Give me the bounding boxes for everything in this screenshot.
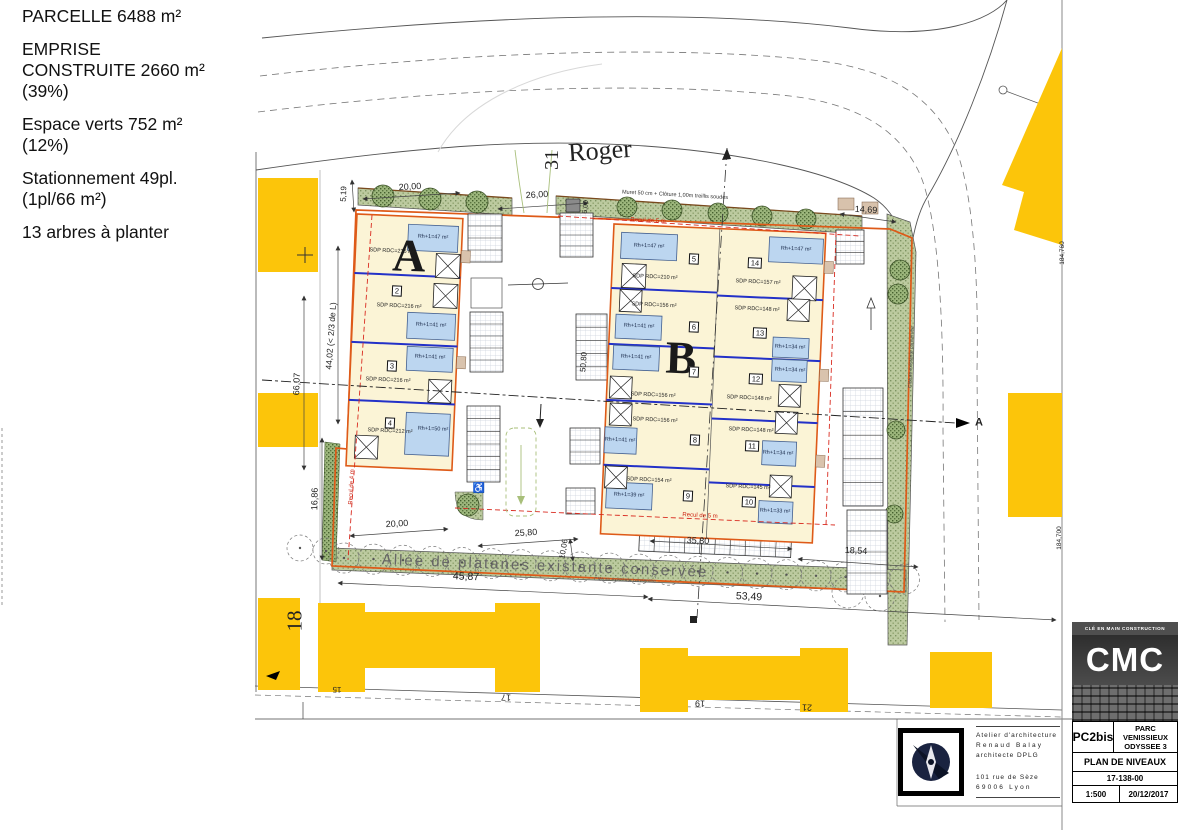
patio-box bbox=[354, 435, 378, 459]
architect-address: 101 rue de Sèze bbox=[976, 773, 1060, 783]
info-line: Stationnement 49pl. bbox=[22, 168, 234, 189]
planter bbox=[471, 278, 502, 308]
parking-row bbox=[843, 388, 883, 506]
sheet-title: PLAN DE NIVEAUX bbox=[1073, 753, 1177, 771]
parking-row bbox=[470, 312, 503, 372]
context-building bbox=[930, 652, 992, 708]
label-dimensions-right_14_69: 14,69 bbox=[855, 205, 878, 215]
info-line: (1pl/66 m²) bbox=[22, 189, 234, 210]
label-dimensions-left_16_86: 16,86 bbox=[310, 488, 319, 511]
tree-crown-icon bbox=[887, 421, 905, 439]
info-line: EMPRISE bbox=[22, 39, 234, 60]
title-block: CLÉ EN MAIN CONSTRUCTION CMC PC2bis PARC… bbox=[1072, 622, 1178, 803]
architect-text-block: Atelier d'architecture Renaud Balay arch… bbox=[976, 726, 1060, 811]
tree-crown-icon bbox=[708, 203, 728, 223]
context-building bbox=[318, 603, 540, 692]
tree-trunk-dot bbox=[785, 573, 787, 575]
label-dimensions-bottom_20_00: 20,00 bbox=[386, 519, 409, 529]
site-plan-sheet: Roger31181517192120,0026,005,196,0014,69… bbox=[0, 0, 1180, 831]
tree-crown-icon bbox=[419, 188, 441, 210]
unit-number: 6 bbox=[689, 321, 700, 332]
unit-number: 8 bbox=[690, 434, 701, 445]
project-name: PARC VENISSIEUX ODYSSEE 3 bbox=[1114, 722, 1177, 752]
info-line: 13 arbres à planter bbox=[22, 222, 234, 243]
tree-crown-icon bbox=[885, 505, 903, 523]
unit-number: 7 bbox=[689, 366, 700, 377]
label-dimensions-bottom_53_49: 53,49 bbox=[736, 591, 763, 603]
label-dimensions-left_66_07: 66,07 bbox=[292, 373, 302, 396]
info-line: PARCELLE 6488 m² bbox=[22, 6, 234, 27]
label-streets-house_numbers-2: 19 bbox=[695, 698, 705, 707]
parking-row bbox=[467, 406, 500, 482]
label-dimensions-bottom_35_80: 35,80 bbox=[687, 536, 710, 546]
context-building bbox=[640, 648, 848, 712]
architect-logo-image bbox=[903, 733, 959, 791]
tree-trunk-dot bbox=[815, 575, 817, 577]
tree-trunk-dot bbox=[756, 572, 758, 574]
label-dimensions-bottom_18_54: 18,54 bbox=[845, 546, 868, 556]
section-arrow bbox=[956, 418, 970, 428]
info-paragraph: PARCELLE 6488 m² bbox=[22, 6, 234, 27]
parking-row bbox=[560, 213, 593, 257]
tree-crown-icon bbox=[888, 284, 908, 304]
context-building bbox=[258, 393, 318, 447]
dimension-line bbox=[648, 599, 1056, 620]
porch bbox=[838, 198, 854, 210]
context-building bbox=[1002, 48, 1062, 245]
patio-box bbox=[792, 276, 817, 301]
info-paragraph: 13 arbres à planter bbox=[22, 222, 234, 243]
label-streets-number_left: 18 bbox=[285, 611, 306, 632]
info-paragraph: Espace verts 752 m²(12%) bbox=[22, 114, 234, 156]
info-line: (39%) bbox=[22, 81, 234, 102]
parking-row bbox=[468, 214, 502, 262]
drawing-date: 20/12/2017 bbox=[1120, 786, 1177, 802]
architect-address: 69006 Lyon bbox=[976, 783, 1060, 793]
label-dimensions-top_left: 20,00 bbox=[399, 182, 422, 192]
label-dimensions-entrance: 26,00 bbox=[526, 190, 549, 200]
tree-trunk-dot bbox=[726, 571, 728, 573]
label-notes-section_marker: A bbox=[975, 418, 983, 429]
patio-box bbox=[769, 475, 792, 498]
patio-box bbox=[787, 299, 810, 322]
parking-row-outline bbox=[470, 312, 503, 372]
patio-box bbox=[775, 411, 798, 434]
label-dimensions-depth_6: 6,00 bbox=[582, 200, 590, 214]
tree-trunk-dot bbox=[343, 557, 345, 559]
architect-line: architecte DPLG bbox=[976, 751, 1060, 761]
label-streets-number_top: 31 bbox=[542, 150, 562, 170]
unit-number: 13 bbox=[753, 327, 768, 339]
context-building bbox=[1008, 393, 1062, 517]
tree-crown-icon bbox=[617, 197, 637, 217]
label-dimensions-center_50_80: 50,80 bbox=[579, 352, 588, 373]
unit-number: 3 bbox=[387, 360, 398, 371]
parking-row-outline bbox=[843, 388, 883, 506]
label-levels-north: 184,760 bbox=[1060, 241, 1067, 265]
dimension-line bbox=[350, 529, 448, 536]
unit-number: 14 bbox=[748, 257, 763, 269]
info-line: CONSTRUITE 2660 m² bbox=[22, 60, 234, 81]
tree-crown-icon bbox=[372, 185, 394, 207]
unit-number: 9 bbox=[683, 490, 694, 501]
tree-crown-icon bbox=[457, 494, 479, 516]
company-tagline: CLÉ EN MAIN CONSTRUCTION bbox=[1072, 622, 1178, 635]
tree-crown-icon bbox=[752, 206, 772, 226]
patio-box bbox=[609, 403, 632, 426]
tree-crown-icon bbox=[466, 191, 488, 213]
dimension-line bbox=[338, 583, 648, 597]
architect-line: Atelier d'architecture bbox=[976, 731, 1060, 741]
title-block-table: PC2bis PARC VENISSIEUX ODYSSEE 3 PLAN DE… bbox=[1072, 721, 1178, 803]
tree-trunk-dot bbox=[879, 595, 881, 597]
unit-number: 5 bbox=[689, 253, 700, 264]
label-dimensions-bottom_45_87: 45,87 bbox=[453, 571, 480, 582]
unit-number: 12 bbox=[749, 373, 764, 385]
context-building bbox=[258, 178, 318, 272]
patio-box bbox=[435, 253, 460, 278]
phase-label: PC2bis bbox=[1073, 722, 1114, 752]
info-line: Espace verts 752 m² bbox=[22, 114, 234, 135]
tree-trunk-dot bbox=[372, 558, 374, 560]
label-symbols-handicap: ♿ bbox=[473, 484, 485, 494]
drawing-scale: 1:500 bbox=[1073, 786, 1120, 802]
label-levels-south: 184,700 bbox=[1057, 526, 1064, 550]
architect-logo bbox=[898, 728, 964, 796]
parking-row bbox=[566, 488, 595, 514]
label-dimensions-side_5_19: 5,19 bbox=[340, 186, 349, 202]
parking-row-outline bbox=[570, 428, 600, 464]
unit-number: 11 bbox=[745, 440, 759, 452]
cmc-logo: CMC bbox=[1072, 635, 1178, 685]
label-streets-house_numbers-1: 17 bbox=[501, 692, 511, 701]
unit-number: 10 bbox=[742, 496, 757, 508]
divider-line bbox=[976, 797, 1060, 798]
tree-trunk-dot bbox=[325, 550, 327, 552]
info-paragraph: EMPRISECONSTRUITE 2660 m²(39%) bbox=[22, 39, 234, 102]
label-streets-house_numbers-3: 21 bbox=[802, 702, 812, 711]
patio-box bbox=[604, 466, 627, 489]
tree-crown-icon bbox=[890, 260, 910, 280]
patio-box bbox=[609, 376, 632, 399]
label-streets-house_numbers-0: 15 bbox=[332, 685, 341, 693]
label-streets-name: Roger bbox=[567, 136, 632, 166]
unit-number: 4 bbox=[385, 417, 396, 428]
bin-shelter bbox=[566, 199, 580, 212]
dimension-line bbox=[352, 180, 354, 212]
parking-row bbox=[570, 428, 600, 464]
tree-trunk-dot bbox=[299, 547, 301, 549]
building-photo bbox=[1072, 685, 1178, 721]
architect-line: Renaud Balay bbox=[976, 741, 1060, 751]
info-paragraph: Stationnement 49pl.(1pl/66 m²) bbox=[22, 168, 234, 210]
unit-number: 2 bbox=[392, 285, 403, 296]
info-panel: PARCELLE 6488 m²EMPRISECONSTRUITE 2660 m… bbox=[22, 6, 234, 255]
patio-box bbox=[433, 283, 458, 308]
project-number: 17-138-00 bbox=[1073, 772, 1177, 785]
info-line: (12%) bbox=[22, 135, 234, 156]
label-dimensions-bottom_25_80: 25,80 bbox=[515, 528, 538, 538]
tree-crown-icon bbox=[662, 200, 682, 220]
patio-box bbox=[778, 384, 801, 407]
